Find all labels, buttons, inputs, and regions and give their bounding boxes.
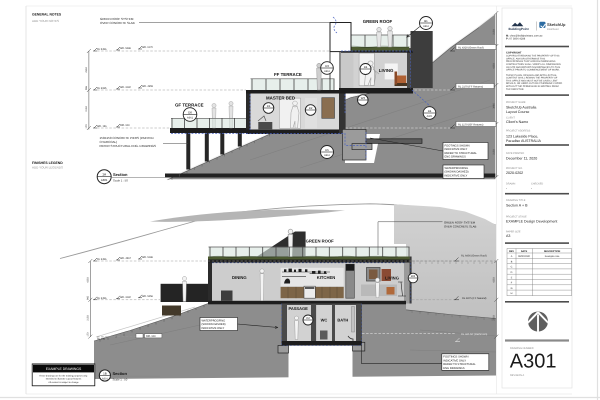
svg-text:DRAWN: DRAWN (506, 182, 516, 185)
svg-text:2150: 2150 (492, 315, 495, 321)
svg-text:W4: W4 (411, 274, 416, 278)
svg-text:DATE: DATE (521, 250, 528, 253)
svg-text:A301: A301 (102, 377, 108, 380)
svg-text:OVER CONCRETE SLAB: OVER CONCRETE SLAB (100, 21, 135, 25)
svg-text:DESCRIPTION: DESCRIPTION (544, 250, 561, 253)
svg-text:B1: B1 (424, 19, 428, 23)
svg-text:Scale 1 : 50: Scale 1 : 50 (113, 179, 128, 183)
svg-text:(SHOWN DASHED): (SHOWN DASHED) (445, 171, 469, 174)
svg-text:RPL 900: RPL 900 (120, 124, 130, 127)
svg-text:FOOTINGS SHOWN: FOOTINGS SHOWN (443, 356, 468, 359)
svg-text:INDICATIVE ONLY: INDICATIVE ONLY (445, 174, 468, 177)
svg-text:A361: A361 (324, 70, 330, 73)
svg-text:2150: 2150 (492, 29, 495, 35)
svg-text:CONTRACTORS SHALL VERIFY ALL D: CONTRACTORS SHALL VERIFY ALL DIMENSIONS (506, 63, 561, 66)
svg-text:SketchUp: SketchUp (547, 22, 566, 27)
svg-text:D6: D6 (188, 110, 192, 114)
svg-text:OFFICE. ANY/OR OTHERWISE THIS: OFFICE. ANY/OR OTHERWISE THIS (506, 57, 546, 60)
svg-text:4350: 4350 (85, 67, 88, 73)
svg-text:ADD YOUR NOTES: ADD YOUR NOTES (32, 19, 59, 23)
svg-text:A361: A361 (324, 154, 330, 157)
svg-text:SPL 3182: SPL 3182 (120, 296, 131, 299)
svg-text:ON SITE AND REPORT DISCREPANCI: ON SITE AND REPORT DISCREPANCIES TO THIS (506, 66, 561, 69)
svg-text:WATERPROOFING: WATERPROOFING (202, 319, 226, 322)
svg-text:170: 170 (85, 124, 88, 129)
svg-text:INDICATIVE ONLY: INDICATIVE ONLY (445, 148, 468, 151)
svg-text:BATH: BATH (337, 318, 348, 323)
svg-text:DRAWING TITLE: DRAWING TITLE (506, 199, 526, 202)
svg-text:SPL 4955: SPL 4955 (142, 85, 153, 88)
svg-text:RESOLD, OR HIRED OUT OR OTHERW: RESOLD, OR HIRED OUT OR OTHERWISE COPIED (506, 82, 563, 85)
svg-text:Section A + B: Section A + B (506, 203, 528, 207)
svg-text:GENERAL NOTES: GENERAL NOTES (32, 13, 62, 17)
svg-text:Client's Name: Client's Name (506, 120, 528, 124)
svg-text:ADD YOUR LEGENDS: ADD YOUR LEGENDS (32, 165, 63, 169)
svg-text:KITCHEN: KITCHEN (317, 275, 336, 280)
svg-text:3965: 3965 (492, 103, 495, 109)
svg-text:RL 1875 (FF Natural): RL 1875 (FF Natural) (462, 297, 487, 300)
svg-text:Layout Course: Layout Course (506, 110, 529, 114)
svg-text:RL 1170 (GF Returns): RL 1170 (GF Returns) (458, 123, 484, 126)
svg-text:1B: 1B (103, 371, 107, 375)
svg-text:THESE PLANS, DESIGNS AND INTEL: THESE PLANS, DESIGNS AND INTELLECTUAL (506, 74, 558, 77)
svg-text:LIVING: LIVING (385, 276, 399, 281)
svg-text:Intended to illustrate Layout: Intended to illustrate Layout features (46, 378, 82, 381)
svg-text:RL 6456 (Green Roof): RL 6456 (Green Roof) (461, 255, 487, 258)
svg-text:RL 2170 (FF Returns): RL 2170 (FF Returns) (458, 85, 483, 88)
svg-text:EXAMPLE Design Development: EXAMPLE Design Development (506, 220, 557, 224)
svg-text:SPL 4567: SPL 4567 (120, 257, 131, 260)
svg-text:THE DIRECTOR.: THE DIRECTOR. (506, 88, 524, 91)
svg-text:RL 4320 (Green Roof): RL 4320 (Green Roof) (458, 46, 484, 49)
svg-text:PROJECT ADDRESS: PROJECT ADDRESS (506, 130, 531, 133)
svg-text:RL 3456: RL 3456 (97, 297, 107, 300)
svg-text:RL 5456: RL 5456 (97, 48, 107, 51)
svg-text:December 11, 2020: December 11, 2020 (506, 157, 537, 161)
svg-text:PROJECT NAME: PROJECT NAME (506, 101, 526, 104)
svg-text:REFER STRUCTURAL ENG. DRAWINGS: REFER STRUCTURAL ENG. DRAWINGS (100, 144, 156, 148)
svg-text:Section: Section (113, 172, 128, 177)
svg-text:A301: A301 (510, 350, 557, 372)
svg-text:CHECKED: CHECKED (531, 182, 543, 185)
svg-text:SPL 5486: SPL 5486 (120, 47, 131, 50)
svg-text:REV: REV (509, 250, 514, 253)
svg-text:4350: 4350 (492, 63, 495, 69)
svg-text:4350: 4350 (86, 277, 89, 283)
svg-text:All content is subject to chan: All content is subject to change (48, 381, 79, 384)
svg-text:A301: A301 (101, 178, 108, 182)
svg-text:MASTER BED: MASTER BED (266, 96, 295, 101)
svg-text:PROJECT STAGE: PROJECT STAGE (506, 215, 527, 218)
svg-text:RL 345 GF (Bathroom): RL 345 GF (Bathroom) (461, 333, 487, 336)
svg-text:123 Lakeside Place,: 123 Lakeside Place, (506, 135, 538, 139)
svg-text:4350: 4350 (492, 277, 495, 283)
svg-text:SPL 5186: SPL 5186 (142, 256, 153, 259)
svg-text:D: D (511, 271, 513, 274)
svg-text:W3: W3 (361, 96, 366, 100)
svg-text:Section: Section (113, 371, 128, 376)
svg-text:(SHOWN DASHED): (SHOWN DASHED) (202, 323, 226, 326)
svg-text:REFER TO STRUCTURAL: REFER TO STRUCTURAL (443, 363, 476, 366)
svg-text:G: G (511, 287, 513, 290)
svg-text:ENG DRAWINGS: ENG DRAWINGS (445, 156, 466, 159)
svg-text:THIS OFFICE AND MUST NOT BE GI: THIS OFFICE AND MUST NOT BE GIVEN, LENT (506, 79, 558, 82)
svg-text:WATERPROOFING: WATERPROOFING (445, 167, 469, 170)
svg-text:SPL 5456: SPL 5456 (142, 295, 153, 298)
svg-text:A3: A3 (506, 234, 510, 238)
svg-text:DATE PRINTED: DATE PRINTED (506, 152, 524, 155)
svg-text:D5: D5 (325, 148, 329, 152)
svg-text:D1: D1 (267, 104, 271, 108)
svg-text:GF TERRACE: GF TERRACE (175, 103, 204, 108)
svg-text:SPL 156: SPL 156 (97, 125, 107, 128)
svg-text:Distributor: Distributor (547, 28, 559, 31)
svg-text:C: C (511, 266, 513, 269)
svg-text:D4: D4 (428, 109, 432, 113)
svg-text:CONTENT SHALL REMAIN THE PROPE: CONTENT SHALL REMAIN THE PROPERTY OF (506, 77, 558, 80)
svg-text:OVER CONCRETE SLAB: OVER CONCRETE SLAB (444, 224, 476, 228)
svg-text:Example note: Example note (545, 255, 560, 258)
svg-text:RL 3456: RL 3456 (97, 258, 107, 261)
svg-text:A361: A361 (187, 117, 194, 120)
svg-text:D2: D2 (309, 106, 313, 110)
svg-text:SPL 9170: SPL 9170 (142, 46, 153, 49)
svg-text:FOOTINGS SHOWN: FOOTINGS SHOWN (445, 144, 470, 147)
svg-text:LIVING: LIVING (379, 68, 394, 73)
svg-text:WC: WC (321, 318, 328, 323)
svg-text:C2: C2 (306, 316, 310, 320)
svg-text:2150: 2150 (86, 315, 89, 321)
svg-text:EXAMPLE DRAWINGS: EXAMPLE DRAWINGS (46, 367, 82, 371)
svg-text:BuildingPoint: BuildingPoint (509, 27, 529, 31)
svg-text:P: 07 3856 4288: P: 07 3856 4288 (506, 38, 526, 41)
svg-text:Scale 1 : 50: Scale 1 : 50 (113, 377, 128, 381)
svg-text:A321: A321 (427, 115, 433, 118)
svg-text:FF TERRACE: FF TERRACE (274, 72, 302, 77)
svg-text:RL 156: RL 156 (97, 338, 106, 341)
svg-text:REVISION A: REVISION A (510, 374, 525, 377)
svg-text:These drawings are for the tra: These drawings are for the training purp… (39, 374, 88, 377)
svg-text:INDICATIVE ONLY: INDICATIVE ONLY (443, 359, 466, 362)
svg-text:SPL 3182: SPL 3182 (120, 86, 131, 89)
svg-text:A361: A361 (423, 25, 429, 28)
svg-text:GREEN ROOF: GREEN ROOF (306, 239, 335, 244)
svg-text:2020-0202: 2020-0202 (506, 171, 523, 175)
svg-text:INDICATIVE ONLY: INDICATIVE ONLY (202, 327, 225, 330)
svg-text:PROJECT NO.: PROJECT NO. (506, 167, 523, 170)
svg-text:GREEN ROOF: GREEN ROOF (363, 19, 393, 24)
svg-text:H: H (511, 292, 513, 295)
svg-text:SketchUp Australia: SketchUp Australia (506, 106, 536, 110)
svg-text:PROCEEDINGS THAT ACROSS DIMENS: PROCEEDINGS THAT ACROSS DIMENSIONS (506, 60, 556, 63)
svg-text:Paradise AUSTRALIA: Paradise AUSTRALIA (506, 139, 542, 143)
svg-text:00/00/2020: 00/00/2020 (518, 255, 531, 258)
svg-text:COPYRIGHT REMAINS THE PROPERTY: COPYRIGHT REMAINS THE PROPERTY OF THIS (506, 55, 560, 58)
svg-text:RPL 900: RPL 900 (146, 335, 156, 338)
svg-text:FINISHES LEGEND: FINISHES LEGEND (32, 161, 63, 165)
svg-text:WITHOUT THE PERMISSION IN WRIT: WITHOUT THE PERMISSION IN WRITING FROM (506, 85, 559, 88)
svg-text:965: 965 (86, 295, 89, 300)
svg-text:170: 170 (86, 332, 89, 337)
svg-text:OFFICE PRIOR TO COMMENCEMENT O: OFFICE PRIOR TO COMMENCEMENT OF WORK. (506, 69, 560, 72)
svg-text:965: 965 (85, 85, 88, 90)
svg-text:ENG DRAWINGS: ENG DRAWINGS (443, 367, 464, 370)
svg-text:2150: 2150 (492, 149, 495, 155)
svg-text:REFER TO STRUCTURAL: REFER TO STRUCTURAL (445, 152, 478, 155)
svg-text:D4: D4 (364, 65, 368, 69)
svg-text:RL 3085: RL 3085 (97, 87, 107, 90)
svg-text:DINING: DINING (232, 275, 247, 280)
svg-text:COPYRIGHT: COPYRIGHT (506, 51, 522, 54)
svg-text:2150: 2150 (85, 106, 88, 112)
svg-text:CLIENT: CLIENT (506, 116, 515, 119)
svg-text:PASSAGE: PASSAGE (289, 306, 309, 311)
svg-text:D3: D3 (325, 64, 329, 68)
